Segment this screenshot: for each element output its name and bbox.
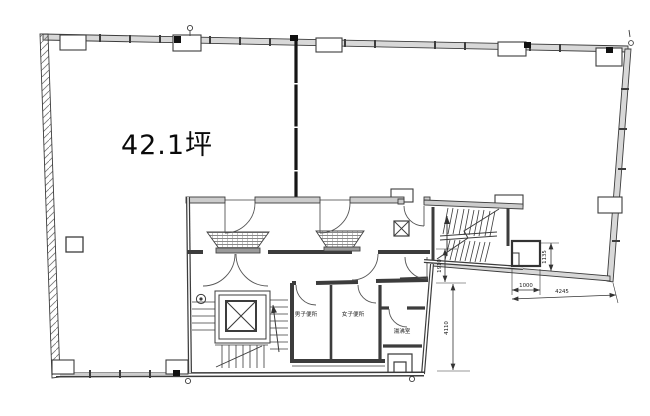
floor-plan-page: 42.1坪 男子便所 女子便所 湯沸室 1910 4110 1135 1000 …	[0, 0, 650, 416]
dim-width-1000: 1000	[519, 283, 533, 289]
eps-room	[512, 241, 540, 266]
right-wall	[607, 49, 631, 282]
door-swings	[203, 203, 427, 327]
east-stairs	[398, 199, 523, 268]
dim-height-4110: 4110	[444, 321, 450, 335]
dim-height-1910: 1910	[437, 259, 443, 273]
outer-walls	[40, 34, 631, 378]
dim-width-4245: 4245	[555, 289, 569, 295]
column-box	[66, 237, 83, 252]
left-wall	[40, 34, 60, 378]
entry-mats	[207, 231, 364, 253]
core-walls	[186, 197, 430, 373]
wall-joint-markers	[173, 35, 613, 376]
room-label-womens-toilet: 女子便所	[342, 310, 365, 318]
bottom-notch	[388, 354, 412, 372]
shaft-box	[394, 221, 409, 236]
window-mullions	[89, 34, 629, 378]
dim-height-1135: 1135	[542, 250, 548, 264]
area-label: 42.1坪	[121, 130, 213, 161]
floor-plan-drawing: 42.1坪 男子便所 女子便所 湯沸室 1910 4110 1135 1000 …	[0, 0, 650, 416]
room-label-kitchenette: 湯沸室	[394, 327, 411, 335]
room-label-mens-toilet: 男子便所	[295, 310, 318, 318]
wall-pilasters	[52, 35, 622, 374]
elevator-shaft	[196, 291, 270, 343]
